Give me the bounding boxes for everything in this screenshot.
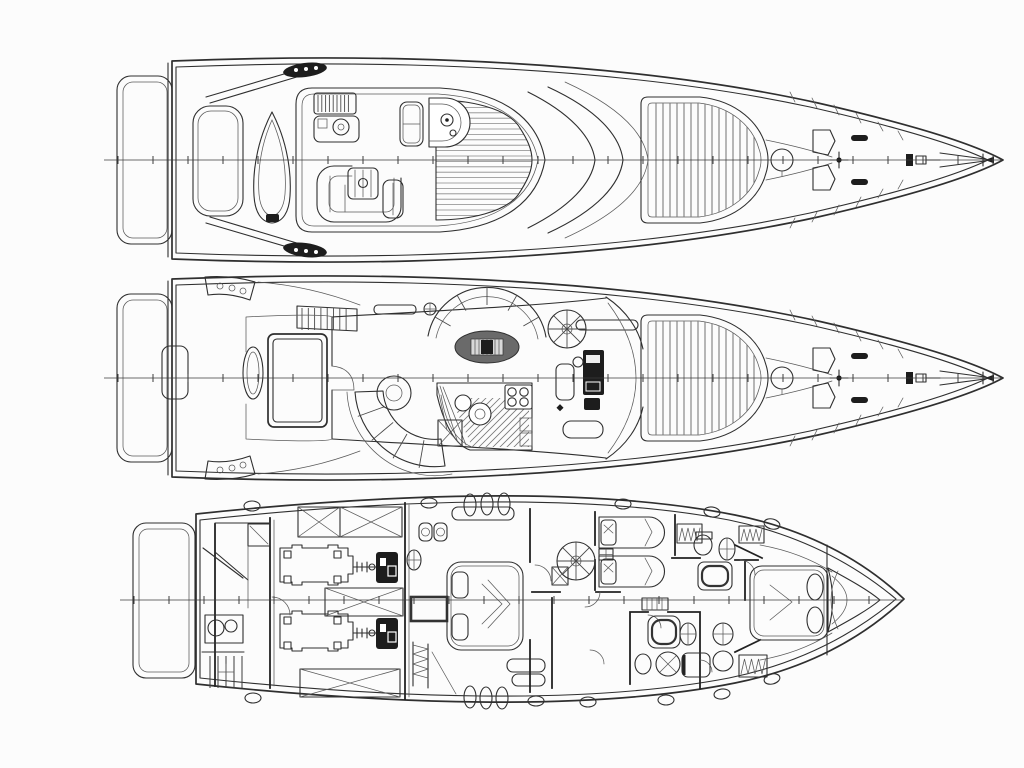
fuel-tanks [298,507,403,697]
centerline-lower-deck [120,596,902,604]
stair-treads [302,308,346,330]
lower-helm-console [573,350,604,410]
lower-deck-plan [120,493,904,709]
double-bed [447,562,523,650]
yacht-deck-plans-drawing: Motor yacht general arrangement — three … [0,0,1024,768]
bedspread-fold [770,585,792,620]
shower-tray [682,653,710,677]
galley [420,383,594,450]
stowed-tender [254,112,291,223]
spiral-treads [557,542,595,580]
pillow [452,572,468,598]
wet-bar [314,93,359,142]
deck-vent [424,303,436,315]
salon-curved-settee [347,391,452,476]
swim-platform [133,523,195,678]
main-deck-plan [104,276,1003,480]
engine-room-forward-bulkhead [405,503,409,699]
steps-to-flybridge [297,306,357,331]
pillow [452,614,468,640]
spiral-staircase [548,310,586,348]
bedspread-fold [482,580,510,628]
toilet [694,535,712,555]
pillow [807,574,823,600]
grill-slats [318,95,348,112]
spiral-staircase-landing [552,542,595,585]
aft-deck-table [243,347,263,399]
blueprint-page: Motor yacht general arrangement — three … [0,0,1024,768]
generator-mufflers [419,523,447,541]
toilet [713,651,733,671]
toilet [635,654,651,674]
centerline-main-deck [104,374,1002,382]
side-shelves [760,545,832,660]
vent-fitting [407,550,421,570]
cockpit-sunpad [268,334,327,427]
helm-cabinet [556,364,574,411]
round-pedestal-table [377,376,411,410]
sofa-divisions [435,287,539,326]
transom-step [162,346,188,399]
hull-outline [196,496,904,702]
galley-sink [469,403,491,425]
vip-bed [750,566,828,640]
centerline-flybridge [104,156,1002,164]
cocktail-table [348,168,378,199]
bench-seat [400,102,423,146]
crew-quarters [202,518,274,688]
guest-bathroom [677,524,764,590]
nightstand [599,549,613,560]
galley-sink [455,395,471,411]
companionway-stairs [413,642,456,694]
pillow [807,607,823,633]
day-head [635,616,733,677]
radar-arch [193,106,243,216]
u-shaped-settee [317,166,401,222]
spiral-treads [548,310,586,348]
steering-wheel [573,357,583,367]
stairwell-down [438,420,462,446]
bar-sink [333,119,349,135]
helm-seat [563,421,603,438]
oval-dining-table [455,331,519,363]
interior-bulkheads [530,509,762,692]
equipment-box [411,597,447,621]
hull-window-band [452,507,514,520]
flybridge-deck-plan [104,58,1003,262]
